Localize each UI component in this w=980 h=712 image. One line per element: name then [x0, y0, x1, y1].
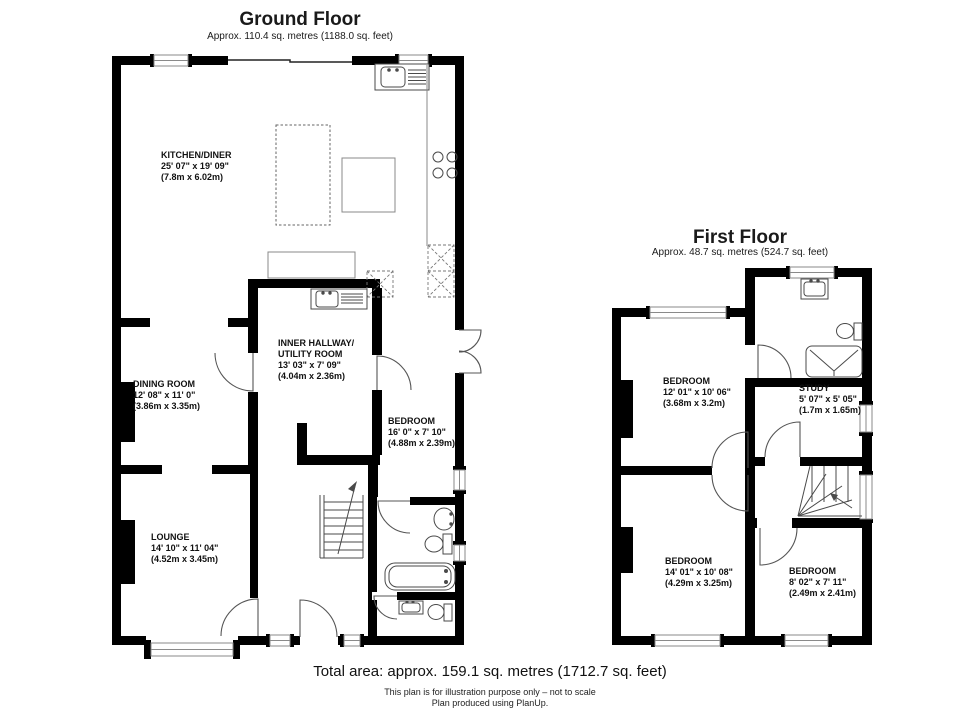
room-label-dining-room: DINING ROOM 12' 08" x 11' 0" (3.86m x 3.… [133, 379, 200, 412]
room-name-line2: UTILITY ROOM [278, 349, 354, 360]
room-dims-metric: (1.7m x 1.65m) [799, 405, 861, 416]
ground-floor-stairs [320, 481, 363, 558]
shower-tray [806, 346, 862, 377]
door-lounge [221, 599, 258, 636]
door-ff-bedroom1 [712, 432, 748, 468]
room-dims-imperial: 12' 08" x 11' 0" [133, 390, 200, 401]
french-door-bottom [459, 351, 481, 373]
door-ff-bathroom [758, 345, 791, 378]
window-bedroom-right [453, 466, 466, 494]
window-bathroom-right [453, 541, 466, 565]
room-name: INNER HALLWAY/ [278, 338, 354, 349]
window-ff-bedroom1-top [646, 306, 730, 319]
room-label-inner-hallway: INNER HALLWAY/ UTILITY ROOM 13' 03" x 7'… [278, 338, 354, 382]
room-dims-metric: (7.8m x 6.02m) [161, 172, 232, 183]
room-label-study: STUDY 5' 07" x 5' 05" (1.7m x 1.65m) [799, 383, 861, 416]
room-dims-imperial: 12' 01" x 10' 06" [663, 387, 731, 398]
ground-floor-subtitle: Approx. 110.4 sq. metres (1188.0 sq. fee… [150, 31, 450, 42]
kitchen-sink [375, 64, 429, 90]
kitchen-top-opening-line [228, 60, 352, 62]
room-label-ff-bedroom3: BEDROOM 8' 02" x 7' 11" (2.49m x 2.41m) [789, 566, 856, 599]
room-label-ff-bedroom1: BEDROOM 12' 01" x 10' 06" (3.68m x 3.2m) [663, 376, 731, 409]
first-floor-stairs [798, 466, 862, 516]
room-dims-imperial: 14' 01" x 10' 08" [665, 567, 733, 578]
room-name: STUDY [799, 383, 861, 394]
room-dims-imperial: 8' 02" x 7' 11" [789, 577, 856, 588]
window-front-left [266, 634, 294, 647]
door-wc [374, 596, 397, 619]
room-dims-metric: (4.04m x 2.36m) [278, 371, 354, 382]
wc-basin [399, 601, 423, 614]
kitchen-island [276, 125, 330, 225]
produced-by-text: Plan produced using PlanUp. [0, 698, 980, 708]
ground-floor-title: Ground Floor [150, 9, 450, 31]
room-dims-metric: (4.52m x 3.45m) [151, 554, 218, 565]
stairs-up-arrow [348, 481, 357, 492]
ff-bathroom-toilet [837, 323, 863, 340]
bathroom-toilet [425, 534, 452, 554]
ff-bathroom-sink [801, 279, 828, 299]
room-dims-metric: (4.29m x 3.25m) [665, 578, 733, 589]
total-area-text: Total area: approx. 159.1 sq. metres (17… [0, 663, 980, 680]
front-door [300, 600, 337, 637]
hob-icon [433, 152, 457, 178]
french-door-top [459, 330, 481, 352]
stairs-down-arrow [830, 493, 838, 501]
door-dining [215, 353, 253, 391]
kitchen-fixtures [268, 64, 457, 309]
room-dims-metric: (2.49m x 2.41m) [789, 588, 856, 599]
bathroom-basin [434, 508, 454, 530]
window-kitchen-left [150, 54, 192, 67]
room-dims-imperial: 25' 07" x 19' 09" [161, 161, 232, 172]
room-name: BEDROOM [663, 376, 731, 387]
first-floor-title: First Floor [590, 227, 890, 249]
room-dims-imperial: 16' 0" x 7' 10" [388, 427, 455, 438]
room-name: KITCHEN/DINER [161, 150, 232, 161]
room-name: BEDROOM [388, 416, 455, 427]
ff-bathroom-fixtures [801, 279, 862, 377]
room-name: LOUNGE [151, 532, 218, 543]
window-front-right [340, 634, 364, 647]
room-dims-imperial: 5' 07" x 5' 05" [799, 394, 861, 405]
door-bedroom-ground [377, 356, 411, 390]
room-name: BEDROOM [789, 566, 856, 577]
room-label-kitchen-diner: KITCHEN/DINER 25' 07" x 19' 09" (7.8m x … [161, 150, 232, 183]
room-dims-metric: (3.86m x 3.35m) [133, 401, 200, 412]
room-dims-metric: (4.88m x 2.39m) [388, 438, 455, 449]
room-dims-imperial: 14' 10" x 11' 04" [151, 543, 218, 554]
room-label-bedroom-ground: BEDROOM 16' 0" x 7' 10" (4.88m x 2.39m) [388, 416, 455, 449]
window-ff-stairs-right [859, 471, 873, 523]
door-bathroom [378, 501, 410, 533]
floorplan-canvas [0, 0, 980, 712]
bay-window-lounge [144, 640, 240, 659]
door-ff-bedroom2 [712, 475, 748, 511]
window-ff-bathroom-top [786, 266, 838, 279]
room-label-ff-bedroom2: BEDROOM 14' 01" x 10' 08" (4.29m x 3.25m… [665, 556, 733, 589]
room-name: DINING ROOM [133, 379, 200, 390]
ground-bathroom-fixtures [385, 508, 455, 621]
utility-sink [311, 289, 367, 309]
wc-toilet [428, 604, 452, 621]
kitchen-peninsula [268, 252, 355, 278]
room-label-lounge: LOUNGE 14' 10" x 11' 04" (4.52m x 3.45m) [151, 532, 218, 565]
kitchen-table [342, 158, 395, 212]
window-ff-study-right [859, 401, 873, 436]
door-ff-bedroom3 [760, 528, 797, 565]
bathtub [385, 563, 455, 590]
first-floor-subtitle: Approx. 48.7 sq. metres (524.7 sq. feet) [590, 247, 890, 258]
room-name: BEDROOM [665, 556, 733, 567]
window-ff-bedroom3-bottom [781, 634, 832, 647]
disclaimer-text: This plan is for illustration purpose on… [0, 687, 980, 697]
window-ff-bedroom2-bottom [651, 634, 724, 647]
room-dims-imperial: 13' 03" x 7' 09" [278, 360, 354, 371]
room-dims-metric: (3.68m x 3.2m) [663, 398, 731, 409]
door-ff-study [765, 422, 800, 457]
